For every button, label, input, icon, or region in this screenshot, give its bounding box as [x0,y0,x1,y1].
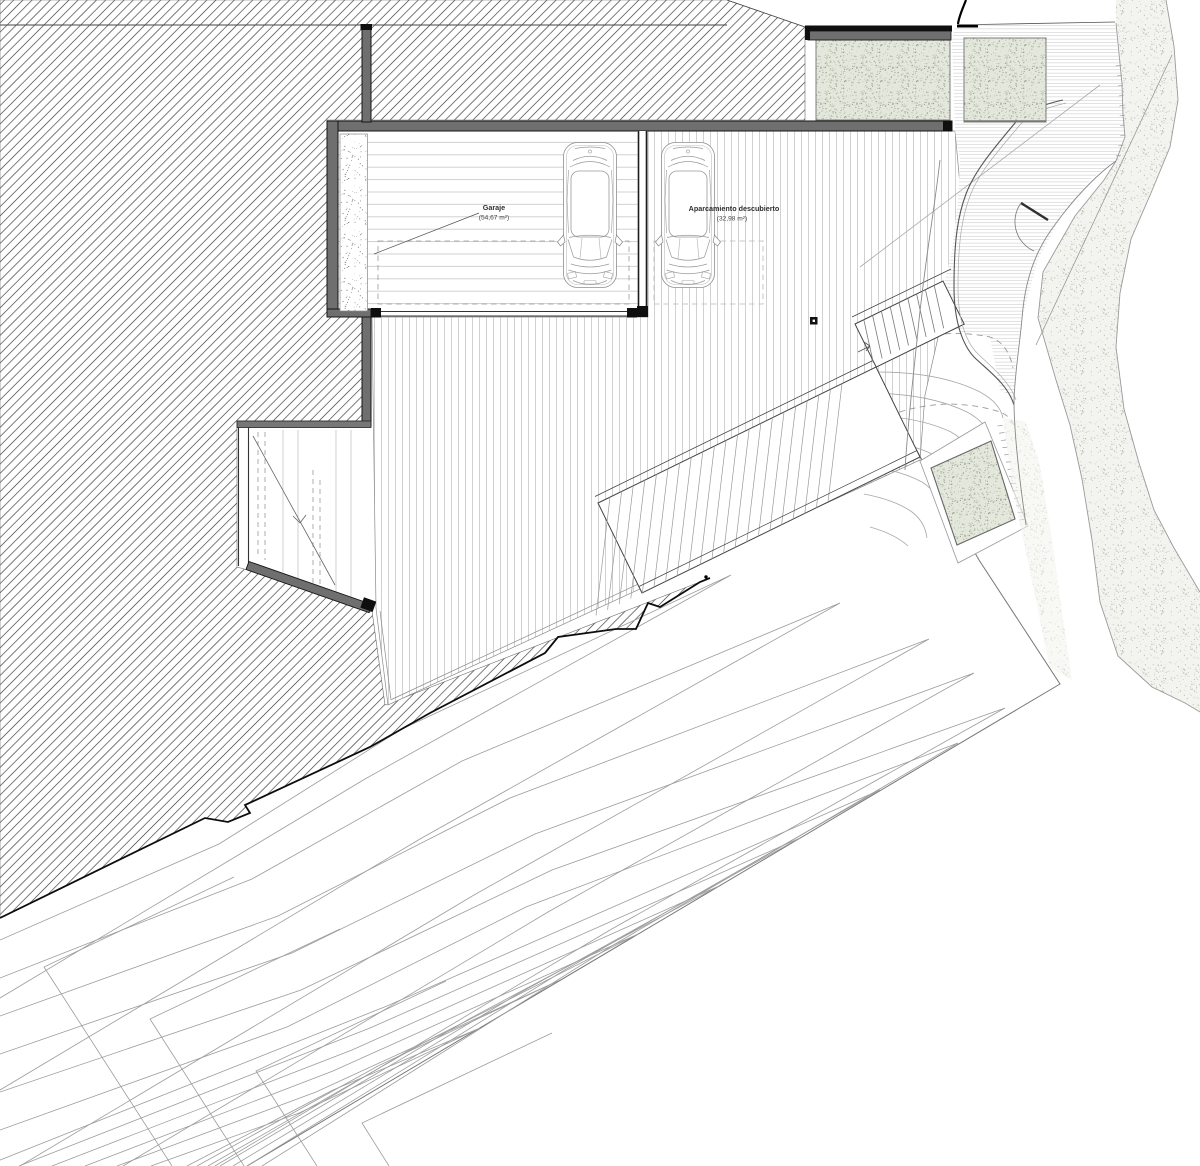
svg-text:Aparcamiento descubierto: Aparcamiento descubierto [689,204,780,213]
svg-text:Garaje: Garaje [483,203,505,212]
svg-text:(54,67 m²): (54,67 m²) [479,215,509,222]
svg-text:(32,98 m²): (32,98 m²) [717,216,747,223]
